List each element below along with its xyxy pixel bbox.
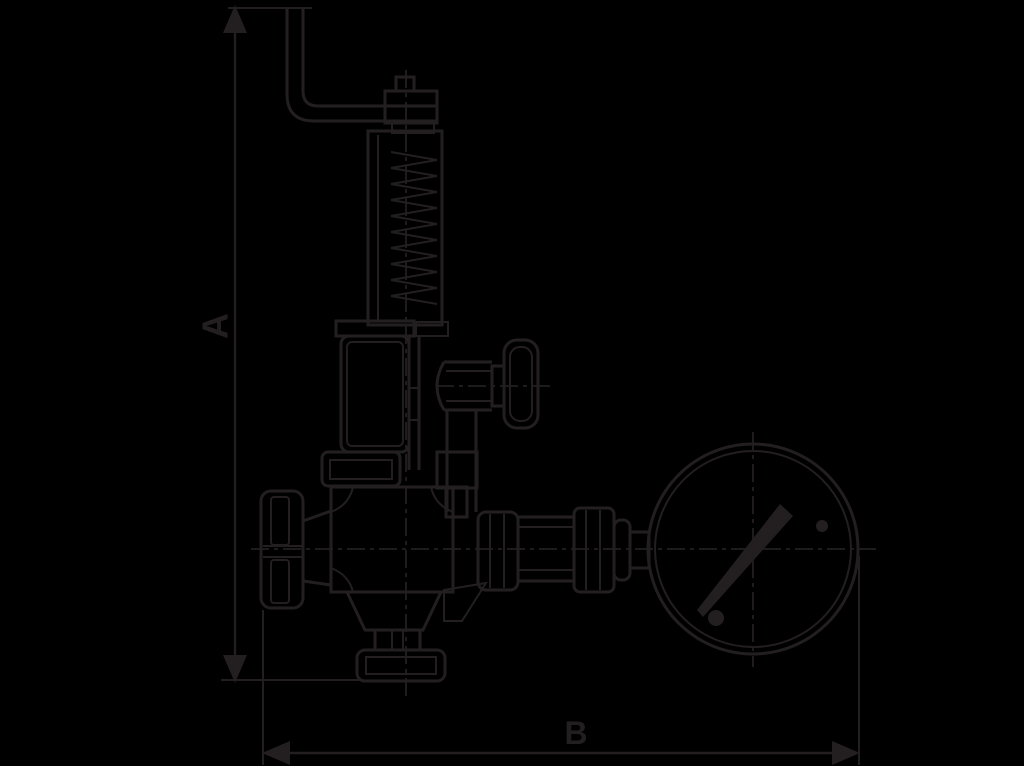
centerlines [251,70,876,697]
upper-body [341,336,419,470]
gauge-needle-pivot-dot [708,610,724,626]
bonnet-top-flange [336,321,414,336]
body-outline [331,487,453,592]
flange-inner [330,460,392,479]
handwheel-cutout-bottom [271,560,289,603]
handwheel-stem [303,511,331,585]
gauge-riser-pipe [437,410,477,512]
bottom-flange-inner [366,657,436,674]
outlet-neck [375,630,420,650]
gauge-nipple [630,532,649,568]
body-shoulder [431,487,453,512]
flange-outer [322,452,400,486]
knob-inner [510,347,532,421]
valve-technical-drawing: A B [0,0,1024,766]
handwheel-cutout-top [271,497,289,545]
outlet-taper [347,592,441,630]
arrow-up-icon [223,5,247,33]
body-shoulder [331,568,353,592]
spring-coils [391,152,437,304]
gauge-needle [697,504,793,617]
dimension-b-label: B [564,715,587,751]
bonnet-flange [322,452,400,486]
arrow-right-icon [832,741,860,765]
spring-chamber-outer [341,336,409,452]
spring-chamber-inner [347,342,403,446]
gauge-dial-dot [816,520,828,532]
arrow-left-icon [262,741,290,765]
top-nut [396,77,414,91]
reducer [614,520,630,580]
spring-bonnet [336,131,448,336]
side-port-knob [437,340,538,428]
drawing-canvas: A B [0,0,1024,766]
elbow-fitting [446,487,467,517]
union-nut [574,508,614,592]
test-lever [287,7,436,121]
arrow-down-icon [223,655,247,683]
body-shoulder [331,487,353,512]
hex-fitting [478,512,518,590]
riser-union-block [437,452,477,488]
bottom-flange-outer [357,650,445,681]
dimension-a-label: A [195,313,236,339]
